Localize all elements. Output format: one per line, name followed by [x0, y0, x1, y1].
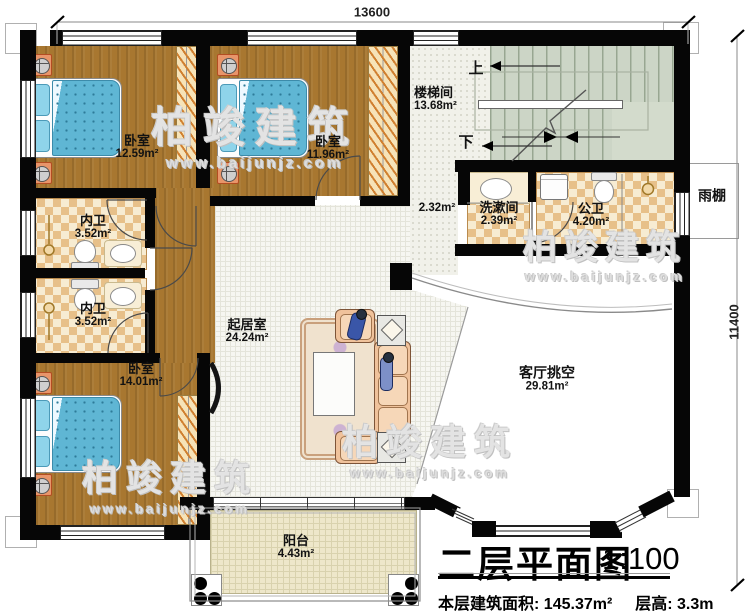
wall-balcony-right	[405, 497, 435, 510]
side-table-bottom	[377, 432, 406, 463]
room-label-bedroom3: 卧室14.01m²	[120, 362, 163, 388]
balcony-post-right	[388, 574, 419, 606]
room-label-living-void: 客厅挑空29.81m²	[519, 366, 575, 393]
title-underline	[438, 576, 670, 579]
stairs-landing	[612, 102, 674, 160]
bedroom1-wardrobe	[176, 46, 197, 163]
window-bedroom1-left	[20, 80, 36, 158]
stair-handrail	[478, 100, 623, 109]
window-bedroom2-top	[247, 30, 357, 46]
person-lying	[380, 357, 393, 391]
wall-bath-bottom	[455, 244, 675, 256]
window-ensuite2-left	[20, 292, 36, 338]
dimension-top: 13600	[354, 5, 390, 20]
wall-right	[674, 30, 690, 497]
title-underline-thin	[438, 573, 670, 574]
stair-up-label: 上	[468, 61, 483, 77]
washing-machine	[540, 174, 568, 200]
wall-bedroom3-right	[197, 353, 210, 540]
wall-bedroom2-bottom-b	[360, 196, 398, 206]
room-label-washroom: 洗漱间2.39m²	[479, 201, 518, 227]
room-label-living: 起居室24.24m²	[226, 318, 269, 344]
room-label-bedroom1: 卧室12.59m²	[116, 134, 159, 160]
balcony-sliding-door	[213, 497, 405, 510]
washroom-sink	[480, 178, 512, 200]
wall-bedroom1-bedroom2	[196, 46, 210, 188]
height-label: 层高:	[635, 596, 672, 613]
room-label-hall: 2.32m²	[419, 202, 455, 214]
wall-bedroom2-stairhall	[398, 46, 410, 206]
room-label-bedroom2: 卧室11.96m²	[307, 135, 349, 161]
room-label-ensuite1: 内卫3.52m²	[75, 214, 111, 240]
plan-scale: 1:100	[602, 541, 680, 577]
window-publicbath-right	[674, 192, 690, 236]
balcony-post-left	[191, 574, 222, 606]
wall-ensuite-right-a	[145, 198, 155, 248]
bedroom2-duvet	[239, 80, 307, 156]
window-bedroom3-left	[20, 398, 36, 478]
bedroom1-duvet	[52, 80, 120, 156]
ensuite1-toilet	[74, 240, 96, 263]
public-bath-toilet	[594, 180, 614, 203]
wall-balcony-left	[180, 497, 213, 510]
side-table-top	[377, 315, 406, 346]
bedroom3-duvet	[52, 397, 120, 471]
plan-info-line: 本层建筑面积: 145.37m² 层高: 3.3m	[438, 590, 713, 614]
wall-void-pillar	[390, 263, 412, 290]
room-label-canopy: 雨棚	[698, 189, 726, 204]
nightstand	[217, 162, 239, 184]
window-ensuite1-left	[20, 210, 36, 256]
stair-down-label: 下	[458, 135, 473, 151]
height-value: 3.3m	[677, 596, 713, 613]
corridor-floor	[155, 188, 215, 363]
nightstand	[217, 54, 239, 76]
area-label: 本层建筑面积:	[438, 596, 539, 613]
ensuite1-sink	[110, 244, 136, 263]
bedroom2-pillow	[220, 84, 237, 116]
floor-plan: 柏竣建筑 www.baijunjz.com 柏竣建筑 www.baijunjz.…	[0, 0, 750, 615]
wall-stair-bottom	[455, 160, 675, 172]
armchair-bottom	[335, 431, 381, 464]
wall-ensuite-divider	[28, 268, 145, 278]
area-value: 145.37m²	[544, 596, 613, 613]
wall-ensuite-right-b	[145, 290, 155, 353]
ensuite2-sink	[110, 287, 136, 306]
room-label-public-bath: 公卫4.20m²	[573, 202, 609, 228]
room-label-stair-hall: 楼梯间13.68m²	[414, 86, 457, 112]
hall-floor	[410, 160, 458, 275]
dimension-right: 11400	[727, 304, 742, 339]
wall-washroom-left	[458, 160, 470, 205]
room-label-balcony: 阳台4.43m²	[278, 534, 314, 560]
bedroom2-wardrobe	[368, 46, 398, 196]
coffee-table	[313, 352, 355, 416]
room-label-ensuite2: 内卫3.52m²	[75, 302, 111, 328]
wall-bath-divider	[528, 172, 536, 202]
window-bedroom3-bottom	[60, 525, 165, 540]
window-stairhall-top	[413, 30, 459, 46]
wall-bedroom1-bottom	[20, 188, 156, 198]
window-bedroom1-top	[62, 30, 162, 46]
wall-bedroom2-bottom-a	[210, 196, 315, 206]
bedroom2-pillow	[220, 120, 237, 152]
